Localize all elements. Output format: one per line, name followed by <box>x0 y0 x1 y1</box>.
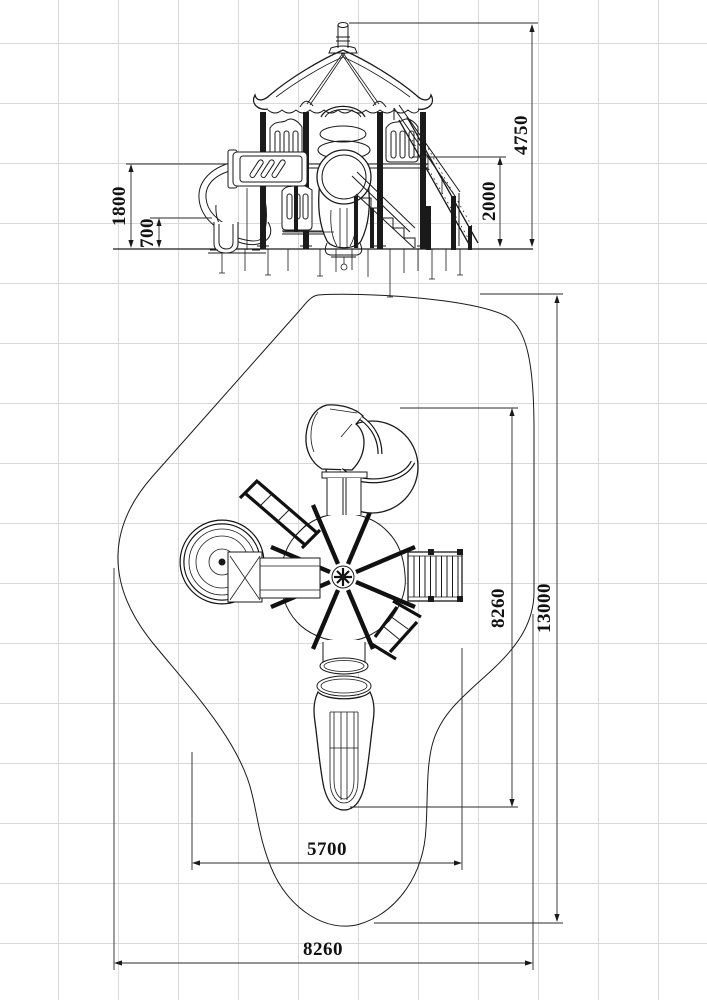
ladder-bridge-frame <box>408 552 462 601</box>
dimension-label-zone-width: 8260 <box>303 939 343 960</box>
bridge-deck <box>260 558 320 598</box>
dimension-label-inner-length: 8260 <box>488 588 509 628</box>
finial-stem <box>336 25 350 48</box>
spiral-platform <box>228 552 262 602</box>
spiral-slide-plan <box>181 521 263 603</box>
tube-ring-1 <box>320 126 366 142</box>
dim-zone-length: 13000 <box>374 294 563 923</box>
stair-post-black <box>468 226 472 250</box>
elevation-view: 4750 2000 1800 700 <box>109 23 538 298</box>
plan-view: 8260 13000 5700 8260 <box>114 294 563 970</box>
tube-opening-outer <box>317 150 371 204</box>
roof-finial <box>329 23 357 54</box>
straight-slide-plan <box>314 640 374 810</box>
dimension-label-spiral-platform-height: 1800 <box>109 186 130 226</box>
arrow-right <box>525 960 533 965</box>
post-4 <box>420 112 426 249</box>
roof-right-eave-curl <box>416 95 432 109</box>
stair-post-black <box>426 206 431 250</box>
finial-base <box>329 46 357 53</box>
roof-inner-right <box>343 57 410 97</box>
arrow-left <box>192 860 200 865</box>
drawing-sheet: 4750 2000 1800 700 <box>0 0 707 1000</box>
stair-post-black <box>370 208 374 248</box>
tube-entrance-dome <box>321 106 365 117</box>
ground-and-footings <box>113 249 533 297</box>
right-ladder-bridge-plan <box>408 549 463 602</box>
arrow-up <box>509 408 514 416</box>
slide-tunnel-fill <box>327 478 361 515</box>
arrow-left <box>114 960 122 965</box>
bridge-post <box>428 596 434 602</box>
spiral-center-post <box>219 559 226 566</box>
dimension-label-slide-exit-height: 700 <box>137 218 158 248</box>
ladder-rail <box>390 622 417 652</box>
bridge-post <box>428 549 434 555</box>
dimension-label-deck-height: 2000 <box>479 181 500 221</box>
stair-post-black <box>451 196 456 250</box>
arrow-down <box>128 240 133 248</box>
post-3 <box>377 112 383 249</box>
central-tube-slide <box>317 106 371 257</box>
ladder-rungs <box>260 494 307 536</box>
arrow-up <box>529 24 534 32</box>
hub-center-dot <box>341 575 346 580</box>
dim-spiral-platform-height: 1800 <box>109 164 228 248</box>
dim-slide-exit-height: 700 <box>137 218 212 248</box>
arrow-up <box>554 295 559 303</box>
arrow-down <box>509 799 514 807</box>
dimension-label-zone-length: 13000 <box>534 583 555 633</box>
spiral-base <box>208 250 266 253</box>
slide-deck-lintel <box>322 472 367 478</box>
bridge-post <box>457 596 463 602</box>
dimension-label-inner-width: 5700 <box>307 839 347 860</box>
bridge-post <box>457 549 463 555</box>
dimension-label-total-height: 4750 <box>511 115 532 155</box>
tube-slide-elbow-left <box>306 405 364 470</box>
pagoda-roof <box>254 23 433 114</box>
slide-exit-foot <box>341 264 347 270</box>
arrow-right <box>454 860 462 865</box>
arrow-up <box>497 157 502 165</box>
arrow-up <box>128 164 133 172</box>
roof-mid-curl-left <box>300 101 313 107</box>
left-bridge-plan <box>260 558 320 598</box>
left-spiral-slide <box>199 150 334 253</box>
roof-left-eave-curl <box>254 95 270 109</box>
stair-post-black <box>354 196 358 248</box>
arrow-down <box>497 239 502 247</box>
top-tube-slides-plan <box>306 405 418 515</box>
ladder-rail <box>258 482 316 532</box>
spiral-exit-mouth <box>214 222 238 253</box>
finial-cap <box>338 23 348 28</box>
slide-body-plan <box>314 692 374 810</box>
playground-technical-drawing: 4750 2000 1800 700 <box>0 0 707 1000</box>
footing-posts <box>219 249 463 297</box>
roof-inner-left <box>276 57 343 97</box>
arrow-down <box>554 914 559 922</box>
spiral-post-black <box>294 186 298 232</box>
arrow-down <box>529 239 534 247</box>
roof-hip-ridges <box>307 53 379 105</box>
